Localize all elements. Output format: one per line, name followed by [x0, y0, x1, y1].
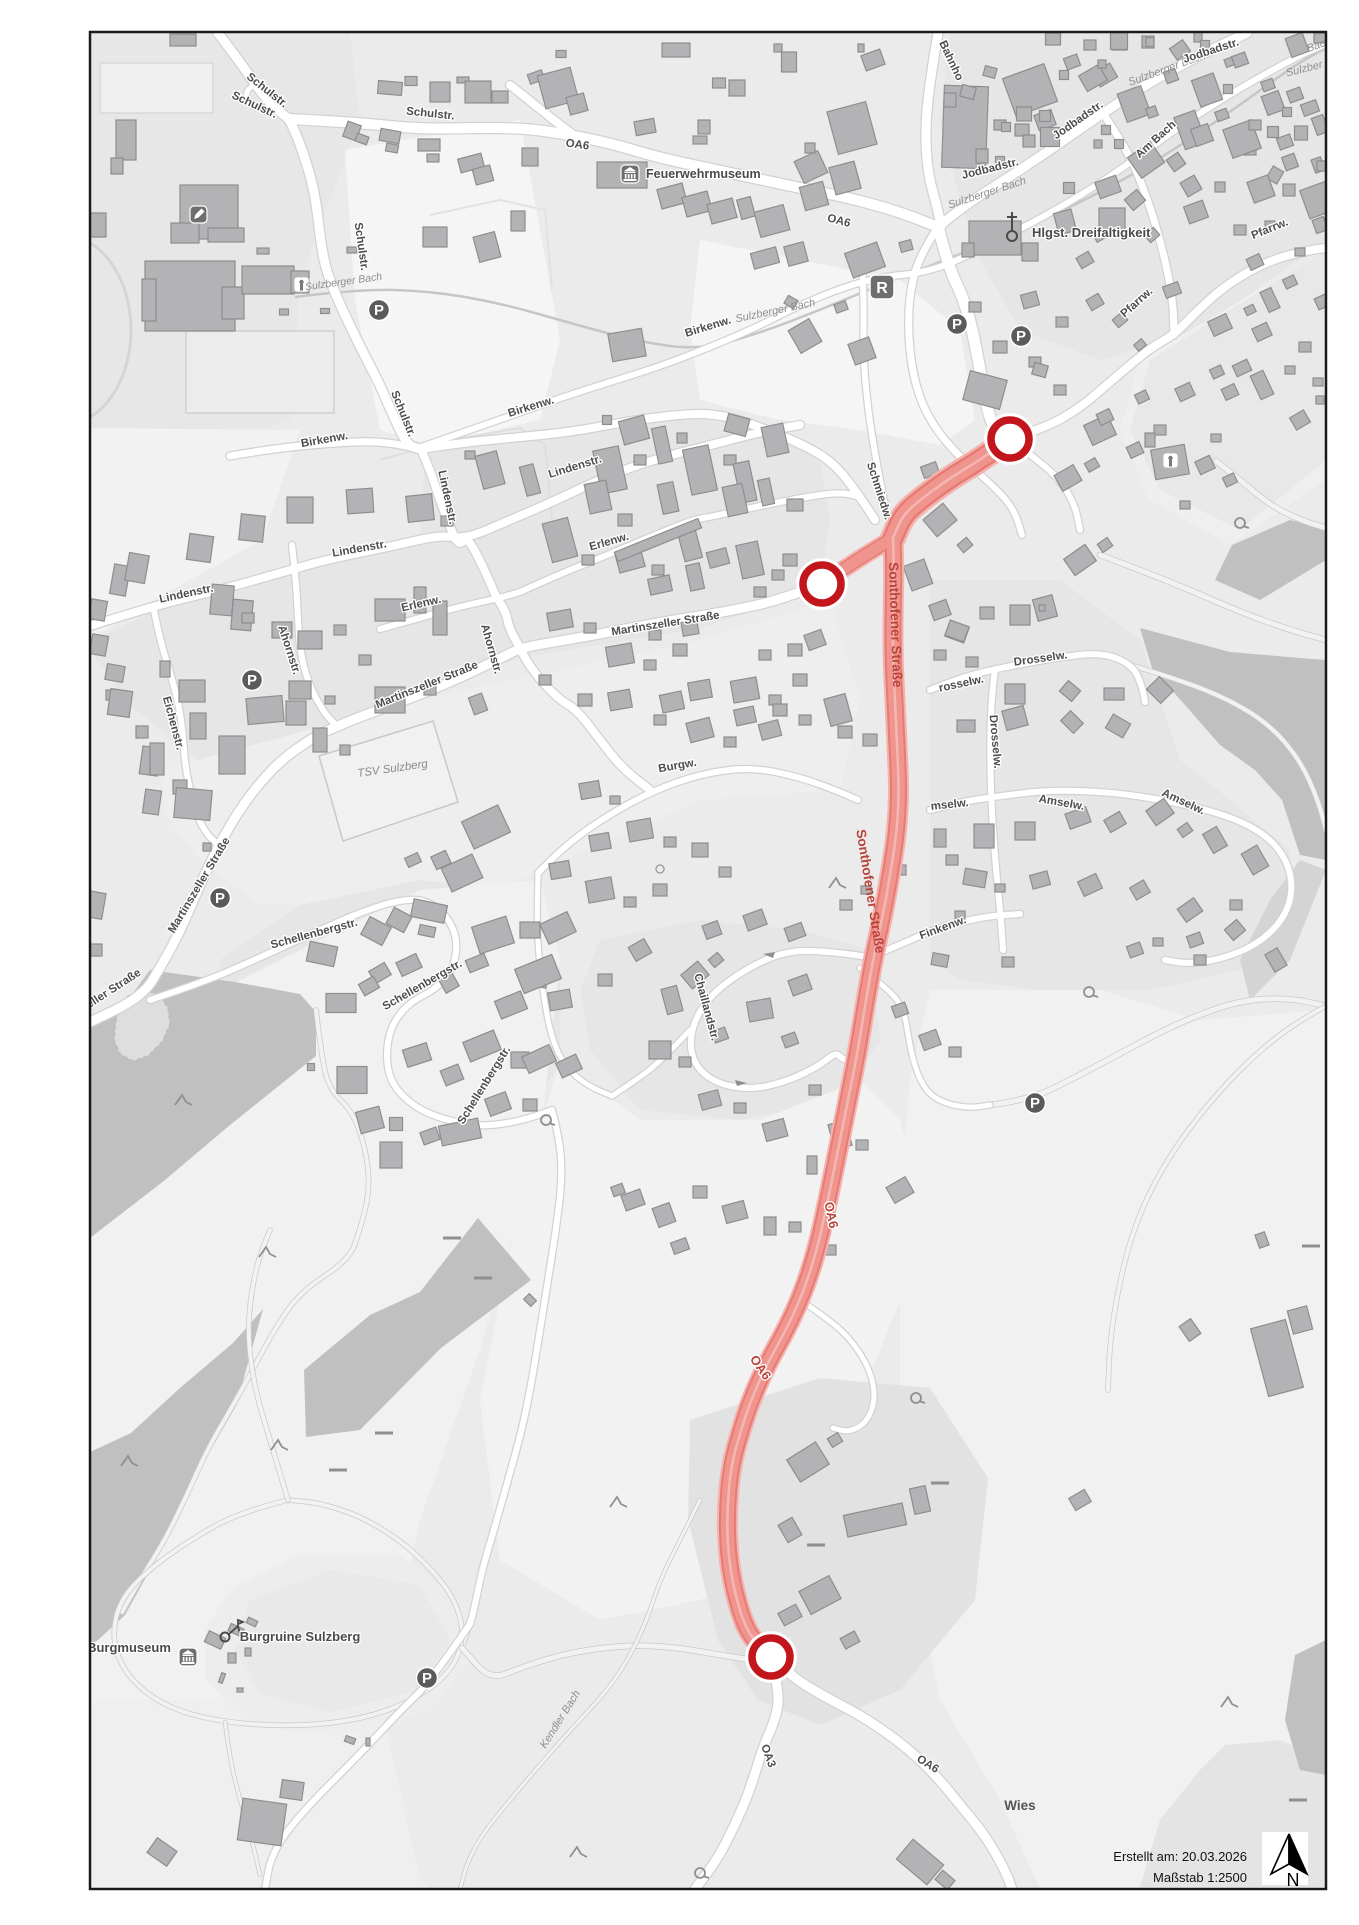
- svg-text:P: P: [1016, 328, 1026, 345]
- svg-text:Maßstab 1:2500: Maßstab 1:2500: [1153, 1870, 1247, 1885]
- svg-text:P: P: [374, 302, 384, 319]
- svg-text:P: P: [247, 672, 257, 689]
- svg-text:Wies: Wies: [1004, 1798, 1035, 1813]
- svg-text:P: P: [952, 316, 962, 333]
- svg-text:P: P: [1030, 1095, 1040, 1112]
- svg-text:Hlgst. Dreifaltigkeit: Hlgst. Dreifaltigkeit: [1032, 225, 1151, 240]
- svg-text:P: P: [215, 890, 225, 907]
- svg-text:Feuerwehrmuseum: Feuerwehrmuseum: [646, 167, 761, 181]
- svg-text:R: R: [876, 280, 888, 297]
- svg-text:N: N: [1287, 1870, 1300, 1890]
- svg-text:Burgmuseum: Burgmuseum: [87, 1640, 171, 1655]
- svg-text:Burgruine Sulzberg: Burgruine Sulzberg: [240, 1629, 361, 1644]
- svg-text:Erstellt am: 20.03.2026: Erstellt am: 20.03.2026: [1113, 1849, 1247, 1864]
- svg-text:P: P: [422, 1670, 432, 1687]
